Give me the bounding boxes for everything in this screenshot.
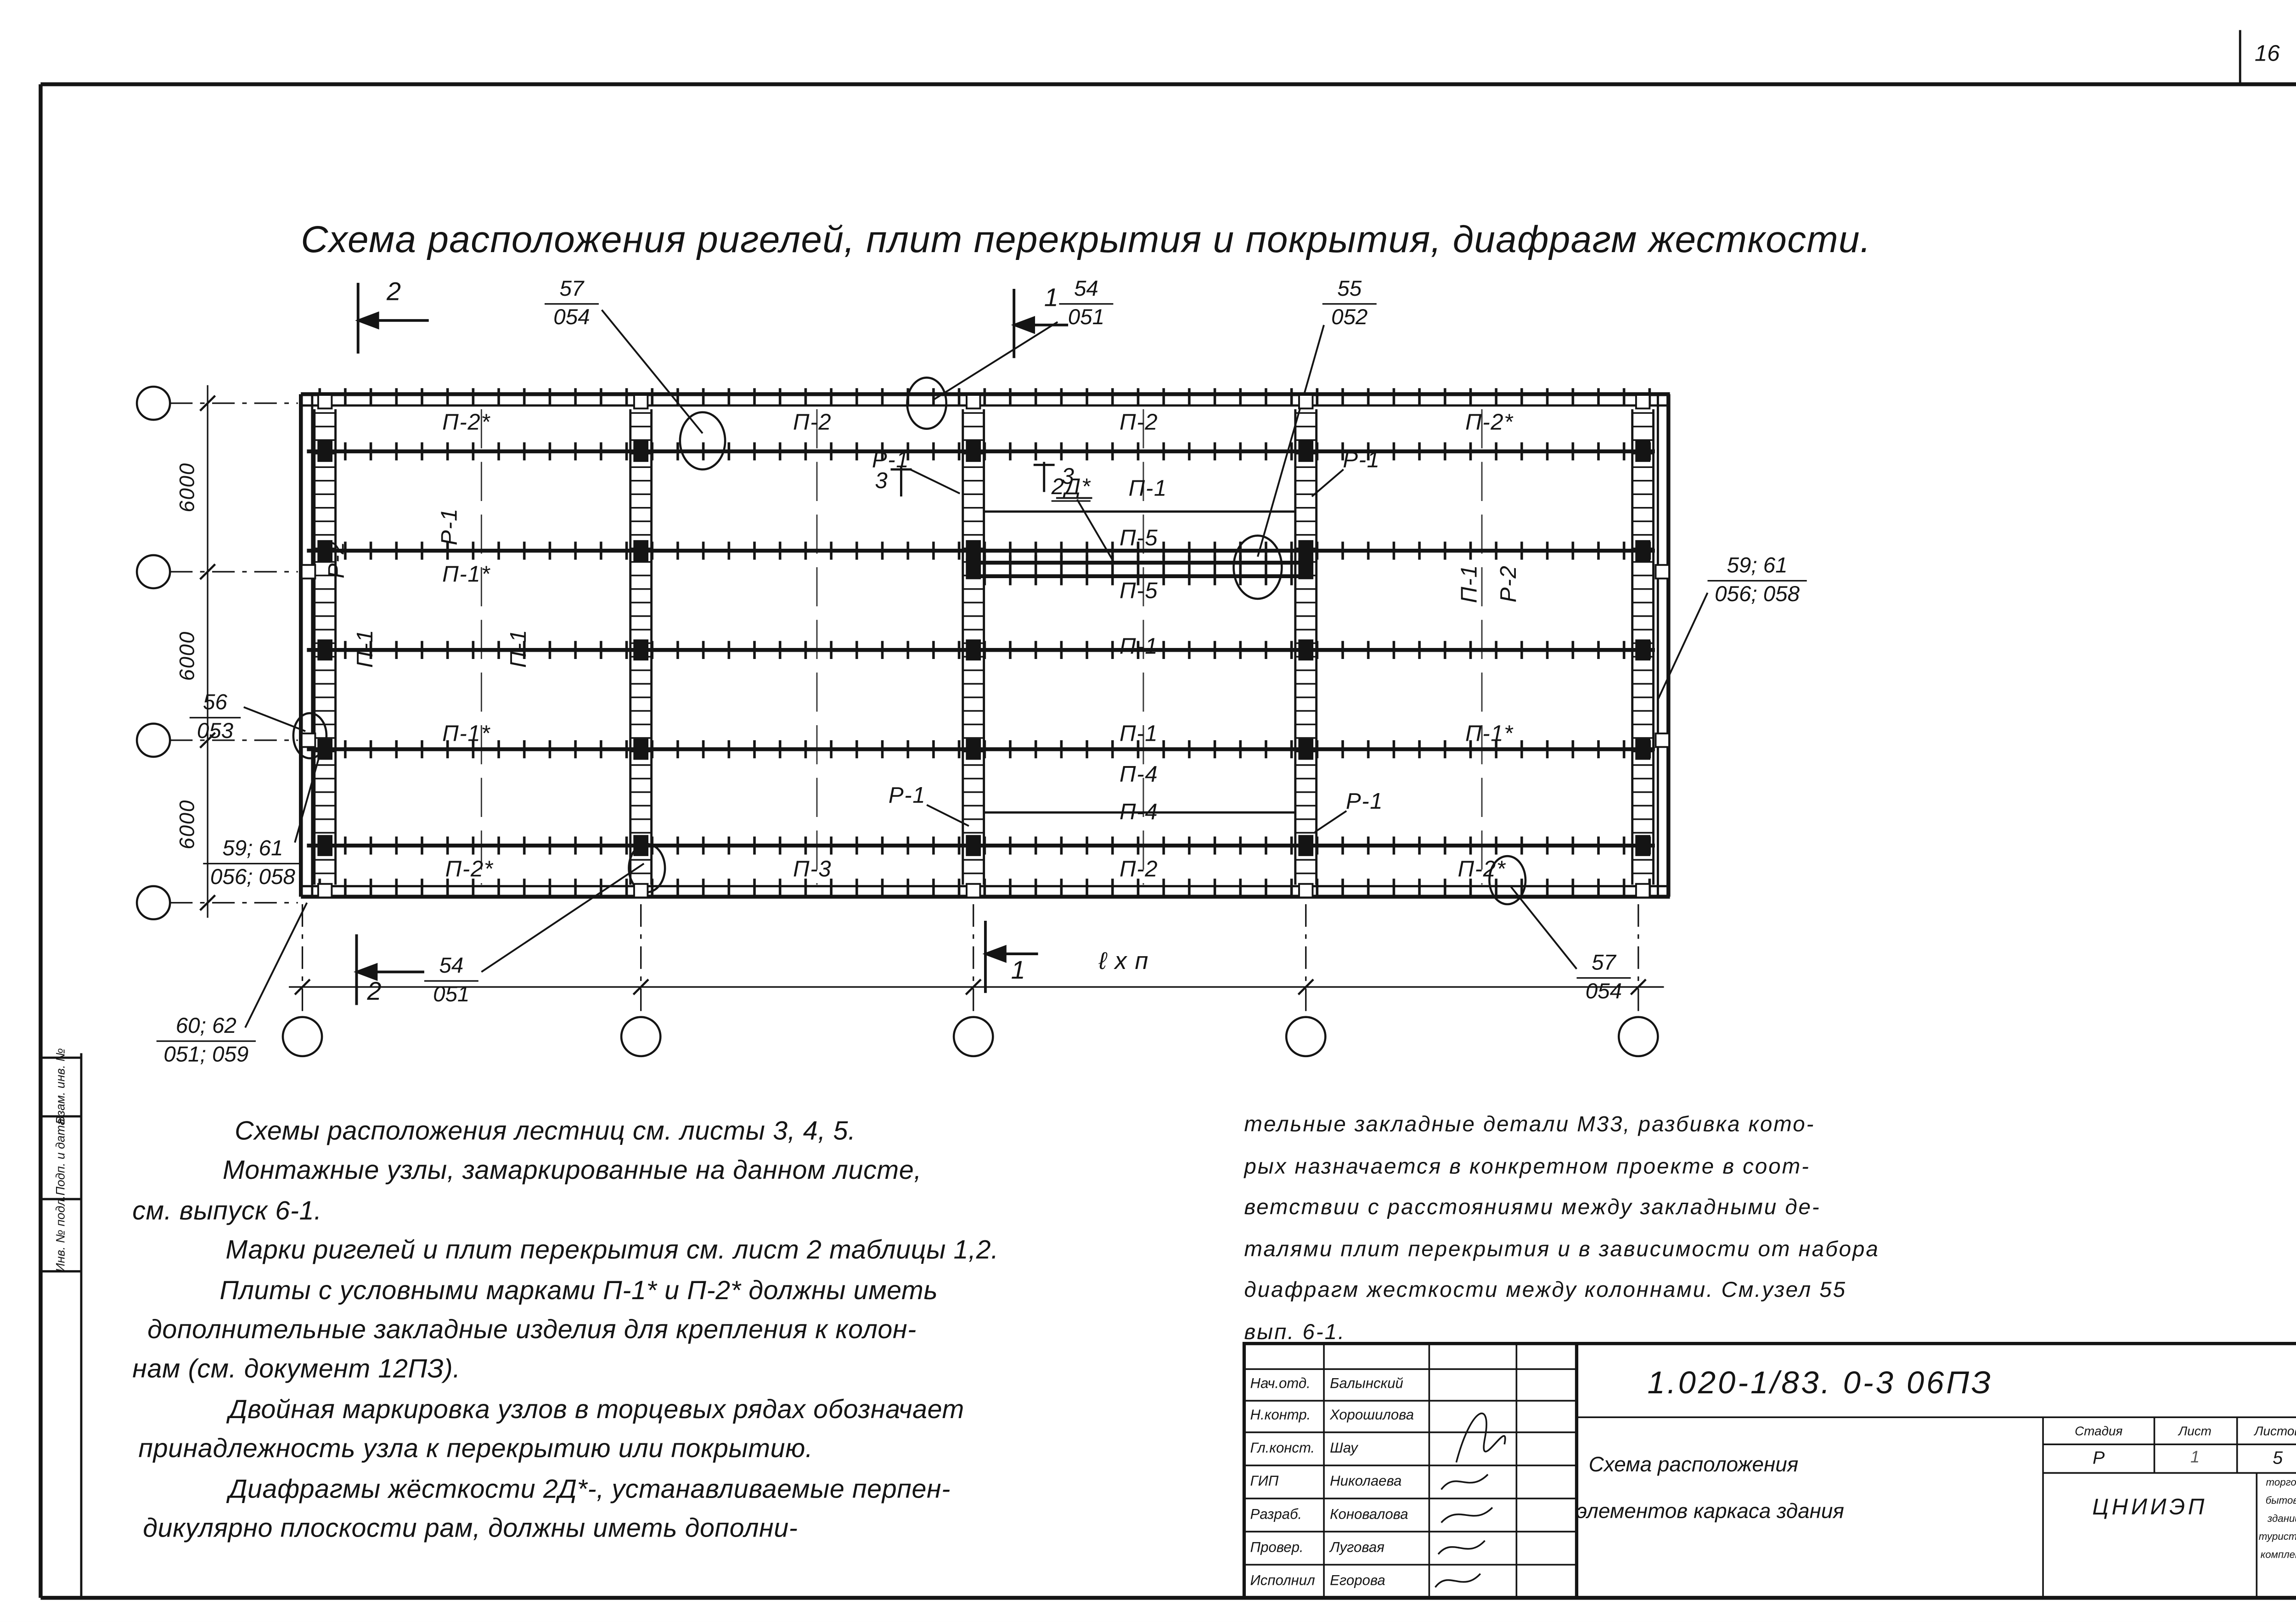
section-mark-digit: 2: [387, 279, 402, 305]
plan-label: П-1: [508, 629, 530, 668]
plan-label: Р-1: [1346, 791, 1383, 813]
plan-label: Р-2: [326, 541, 348, 578]
plan-label: П-2*: [1458, 858, 1506, 881]
page-number: 16: [2255, 43, 2280, 65]
plan-label: П-5: [1120, 580, 1158, 603]
plan-label: Р-2: [1497, 565, 1520, 602]
stamp-doc-number: 1.020-1/83. 0-3 06ПЗ: [1647, 1366, 1993, 1402]
callout-node-number: 59; 61: [203, 837, 302, 863]
sidebar-label: Подп. и дата: [56, 1118, 68, 1195]
callout-sheet-number: 051; 059: [157, 1040, 256, 1067]
plan-label: П-1: [1129, 478, 1167, 500]
plan-label: П-1: [1120, 636, 1158, 658]
stamp-name: Балынский: [1330, 1376, 1403, 1392]
stamp-org-sub-line: торгово-: [2266, 1478, 2296, 1489]
stamp-sheets-label: Листов: [2254, 1423, 2296, 1438]
callout-node-number: 55: [1322, 277, 1377, 303]
node-callout: 54051: [1059, 277, 1113, 330]
plan-label: П-2: [1120, 858, 1158, 881]
note-line: тельные закладные детали М33, разбивка к…: [1244, 1113, 1815, 1137]
generated-linework: [137, 387, 1669, 1056]
note-line: Диафрагмы жёсткости 2Д*-, устанавливаемы…: [229, 1473, 951, 1505]
stamp-role: Гл.конст.: [1250, 1441, 1315, 1457]
stamp-stage-label: Стадия: [2075, 1423, 2122, 1438]
callout-sheet-number: 056; 058: [1707, 580, 1806, 607]
section-mark-digit: 3: [1062, 466, 1075, 488]
plan-label: П-1*: [442, 563, 490, 586]
section-mark-digit: 1: [1044, 285, 1059, 311]
note-line: талями плит перекрытия и в зависимости о…: [1244, 1238, 1879, 1262]
callout-sheet-number: 054: [1576, 977, 1631, 1004]
drawing-title: Схема расположения ригелей, плит перекры…: [301, 222, 1871, 259]
plan-label: Р-1: [1343, 449, 1380, 472]
plan-label: Р-1: [889, 785, 926, 807]
plan-label: П-2: [793, 411, 832, 434]
plan-label: П-1: [1458, 564, 1481, 603]
stamp-name: Шау: [1330, 1441, 1358, 1457]
note-line: см. выпуск 6-1.: [132, 1195, 321, 1227]
node-callout: 57054: [1576, 952, 1631, 1004]
plan-label: П-5: [1120, 527, 1158, 550]
node-callout: 56053: [190, 691, 241, 744]
callout-node-number: 56: [190, 691, 241, 717]
stamp-title-line1: Схема расположения: [1589, 1452, 1799, 1476]
stamp-role: Н.контр.: [1250, 1408, 1311, 1424]
note-line: рых назначается в конкретном проекте в с…: [1244, 1155, 1810, 1179]
node-callout: 59; 61056; 058: [203, 837, 302, 890]
note-line: Марки ригелей и плит перекрытия см. лист…: [225, 1235, 998, 1267]
node-callout: 59; 61056; 058: [1707, 554, 1806, 607]
signature-squiggles: [1435, 1414, 1505, 1588]
callout-node-number: 57: [1576, 952, 1631, 977]
stamp-title-line2: элементов каркаса здания: [1576, 1498, 1844, 1522]
sidebar-label: Инв. № подл.: [56, 1195, 68, 1272]
note-line: диафрагм жесткости между колоннами. См.у…: [1244, 1279, 1846, 1303]
stamp-role: Исполнил: [1250, 1573, 1315, 1589]
callout-sheet-number: 051: [424, 980, 478, 1007]
stamp-name: Луговая: [1330, 1540, 1384, 1556]
plan-label: П-1*: [442, 723, 490, 745]
stamp-name: Егорова: [1330, 1573, 1385, 1589]
node-callout: 57054: [545, 277, 599, 330]
plan-label: П-4: [1120, 764, 1158, 786]
plan-label: П-3: [793, 858, 832, 881]
plan-label: П-2: [1120, 411, 1158, 434]
callout-node-number: 60; 62: [157, 1015, 256, 1041]
section-mark-digit: 6000: [176, 800, 197, 850]
callout-sheet-number: 051: [1059, 303, 1113, 330]
node-callout: 60; 62051; 059: [157, 1015, 256, 1068]
node-callout: 54051: [424, 955, 478, 1008]
note-line: Двойная маркировка узлов в торцевых ряда…: [229, 1394, 964, 1425]
plan-label: П-2*: [445, 858, 494, 881]
dimension-label: ℓ х п: [1099, 951, 1149, 975]
stamp-name: Николаева: [1330, 1474, 1401, 1490]
stamp-role: ГИП: [1250, 1474, 1279, 1490]
note-line: ветствии с расстояниями между закладными…: [1244, 1196, 1820, 1220]
drawing-sheet: Схема расположения ригелей, плит перекры…: [0, 0, 2296, 1622]
callout-node-number: 54: [1059, 277, 1113, 303]
section-mark-digit: 6000: [176, 631, 197, 681]
note-line: Плиты с условными марками П-1* и П-2* до…: [219, 1274, 938, 1306]
stamp-sheets-value: 5: [2273, 1447, 2283, 1469]
section-mark-digit: 1: [1011, 957, 1026, 983]
stamp-role: Нач.отд.: [1250, 1376, 1311, 1392]
stamp-role: Разраб.: [1250, 1507, 1302, 1523]
plan-label: П-1*: [1465, 723, 1514, 745]
stamp-sheet-value: 1: [2190, 1449, 2200, 1467]
plan-label: П-4: [1120, 801, 1158, 824]
note-line: Монтажные узлы, замаркированные на данно…: [223, 1155, 922, 1187]
stamp-org: ЦНИИЭП: [2092, 1495, 2207, 1521]
plan-label: П-1: [1120, 723, 1158, 745]
callout-sheet-number: 053: [190, 717, 241, 744]
plan-label: Р-1: [439, 508, 461, 545]
section-mark-digit: 2: [367, 979, 382, 1004]
section-mark-digit: 3: [875, 470, 888, 493]
callout-sheet-number: 052: [1322, 303, 1377, 330]
plan-label: П-1: [355, 629, 377, 668]
callout-node-number: 57: [545, 277, 599, 303]
callout-node-number: 59; 61: [1707, 554, 1806, 580]
callout-node-number: 54: [424, 955, 478, 980]
stamp-org-sub-line: комплексов: [2261, 1550, 2296, 1561]
note-line: нам (см. документ 12ПЗ).: [132, 1354, 461, 1385]
stamp-org-sub-line: бытовых: [2266, 1496, 2296, 1507]
stamp-sheet-label: Лист: [2178, 1423, 2212, 1438]
note-line: дикулярно плоскости рам, должны иметь до…: [143, 1513, 798, 1544]
stamp-org-sub-line: зданий и: [2268, 1514, 2296, 1525]
stamp-org-sub-line: туристских: [2259, 1532, 2296, 1543]
stamp-name: Коновалова: [1330, 1507, 1408, 1523]
plan-label: П-2*: [442, 411, 490, 434]
note-line: дополнительные закладные изделия для кре…: [147, 1314, 917, 1346]
stamp-role: Провер.: [1250, 1540, 1304, 1556]
stamp-stage-value: Р: [2093, 1447, 2105, 1469]
note-line: принадлежность узла к перекрытию или пок…: [138, 1433, 813, 1465]
callout-sheet-number: 056; 058: [203, 863, 302, 890]
callout-sheet-number: 054: [545, 303, 599, 330]
node-callout: 55052: [1322, 277, 1377, 330]
stamp-name: Хорошилова: [1330, 1408, 1414, 1424]
plan-label: П-2*: [1465, 411, 1514, 434]
section-mark-digit: 6000: [176, 462, 197, 513]
sidebar-label: Взам. инв. №: [56, 1048, 68, 1124]
note-line: Схемы расположения лестниц см. листы 3, …: [235, 1115, 856, 1147]
note-line: вып. 6-1.: [1244, 1321, 1345, 1345]
